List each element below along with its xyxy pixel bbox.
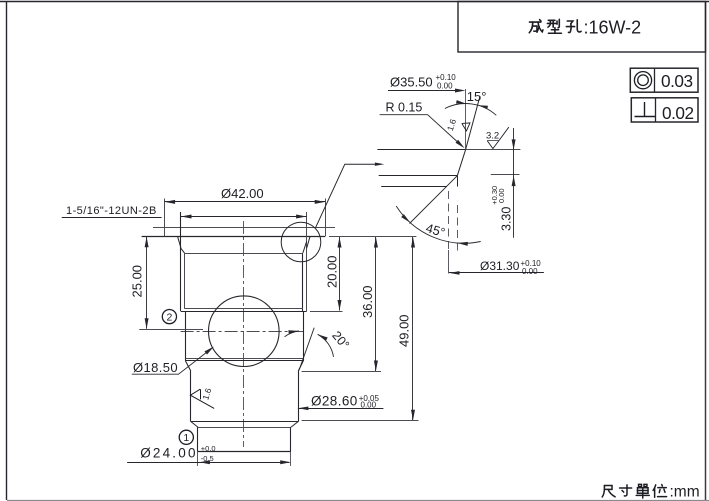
svg-text:Ø24.00: Ø24.00 xyxy=(140,445,197,460)
svg-text:0.03: 0.03 xyxy=(661,71,693,91)
svg-text:Ø18.50: Ø18.50 xyxy=(133,360,178,375)
svg-text:2: 2 xyxy=(166,311,172,323)
svg-text:Ø35.50: Ø35.50 xyxy=(390,74,433,89)
svg-text:0.00: 0.00 xyxy=(522,267,538,276)
svg-text:3.30: 3.30 xyxy=(500,207,514,231)
svg-text:3.2: 3.2 xyxy=(486,131,499,142)
svg-text:1: 1 xyxy=(183,432,189,444)
svg-text::mm: :mm xyxy=(670,484,700,501)
svg-text::16W-2: :16W-2 xyxy=(584,18,642,38)
svg-text:0.02: 0.02 xyxy=(662,103,694,123)
svg-text:0.00: 0.00 xyxy=(497,188,506,203)
svg-text:-0.5: -0.5 xyxy=(201,454,214,463)
svg-text:0.00: 0.00 xyxy=(361,401,377,410)
svg-text:+0.0: +0.0 xyxy=(201,444,216,453)
svg-text:49.00: 49.00 xyxy=(397,314,412,347)
svg-text:36.00: 36.00 xyxy=(360,285,375,318)
svg-text:0.00: 0.00 xyxy=(437,82,453,91)
svg-text:1-5/16"-12UN-2B: 1-5/16"-12UN-2B xyxy=(66,205,157,217)
svg-text:15°: 15° xyxy=(467,89,487,104)
svg-text:Ø28.60: Ø28.60 xyxy=(311,393,358,408)
svg-text:Ø31.30: Ø31.30 xyxy=(480,259,520,273)
svg-text:R 0.15: R 0.15 xyxy=(386,101,423,115)
svg-text:25.00: 25.00 xyxy=(129,265,144,298)
svg-text:Ø42.00: Ø42.00 xyxy=(221,186,264,201)
svg-text:20.00: 20.00 xyxy=(324,255,339,288)
